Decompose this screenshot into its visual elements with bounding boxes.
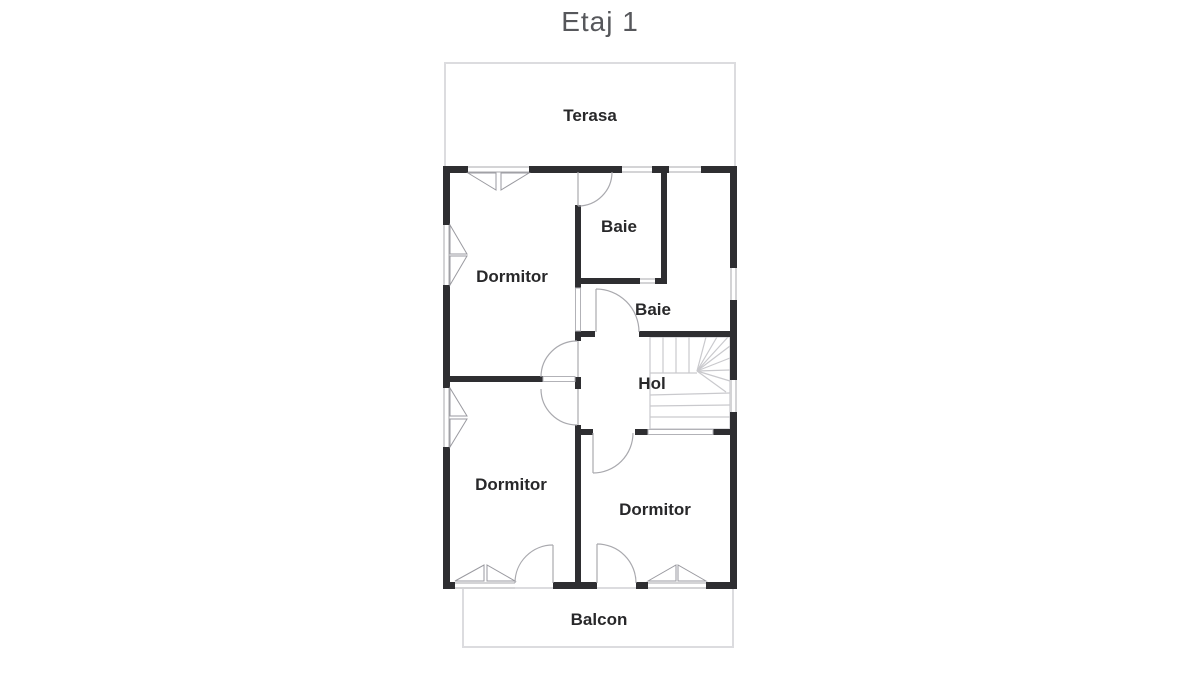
room-label-dormitor-bottom-left: Dormitor — [475, 475, 547, 495]
page-title: Etaj 1 — [561, 6, 639, 38]
room-label-baie-middle: Baie — [635, 300, 671, 320]
room-label-terasa: Terasa — [563, 106, 617, 126]
room-label-baie-top: Baie — [601, 217, 637, 237]
room-label-balcon: Balcon — [571, 610, 628, 630]
room-label-dormitor-bottom-right: Dormitor — [619, 500, 691, 520]
floor-plan-canvas: Etaj 1 Terasa Baie Dormitor Baie Hol Dor… — [0, 0, 1200, 675]
floor-plan-drawing — [0, 0, 1200, 675]
room-label-hol: Hol — [638, 374, 665, 394]
room-label-dormitor-top: Dormitor — [476, 267, 548, 287]
